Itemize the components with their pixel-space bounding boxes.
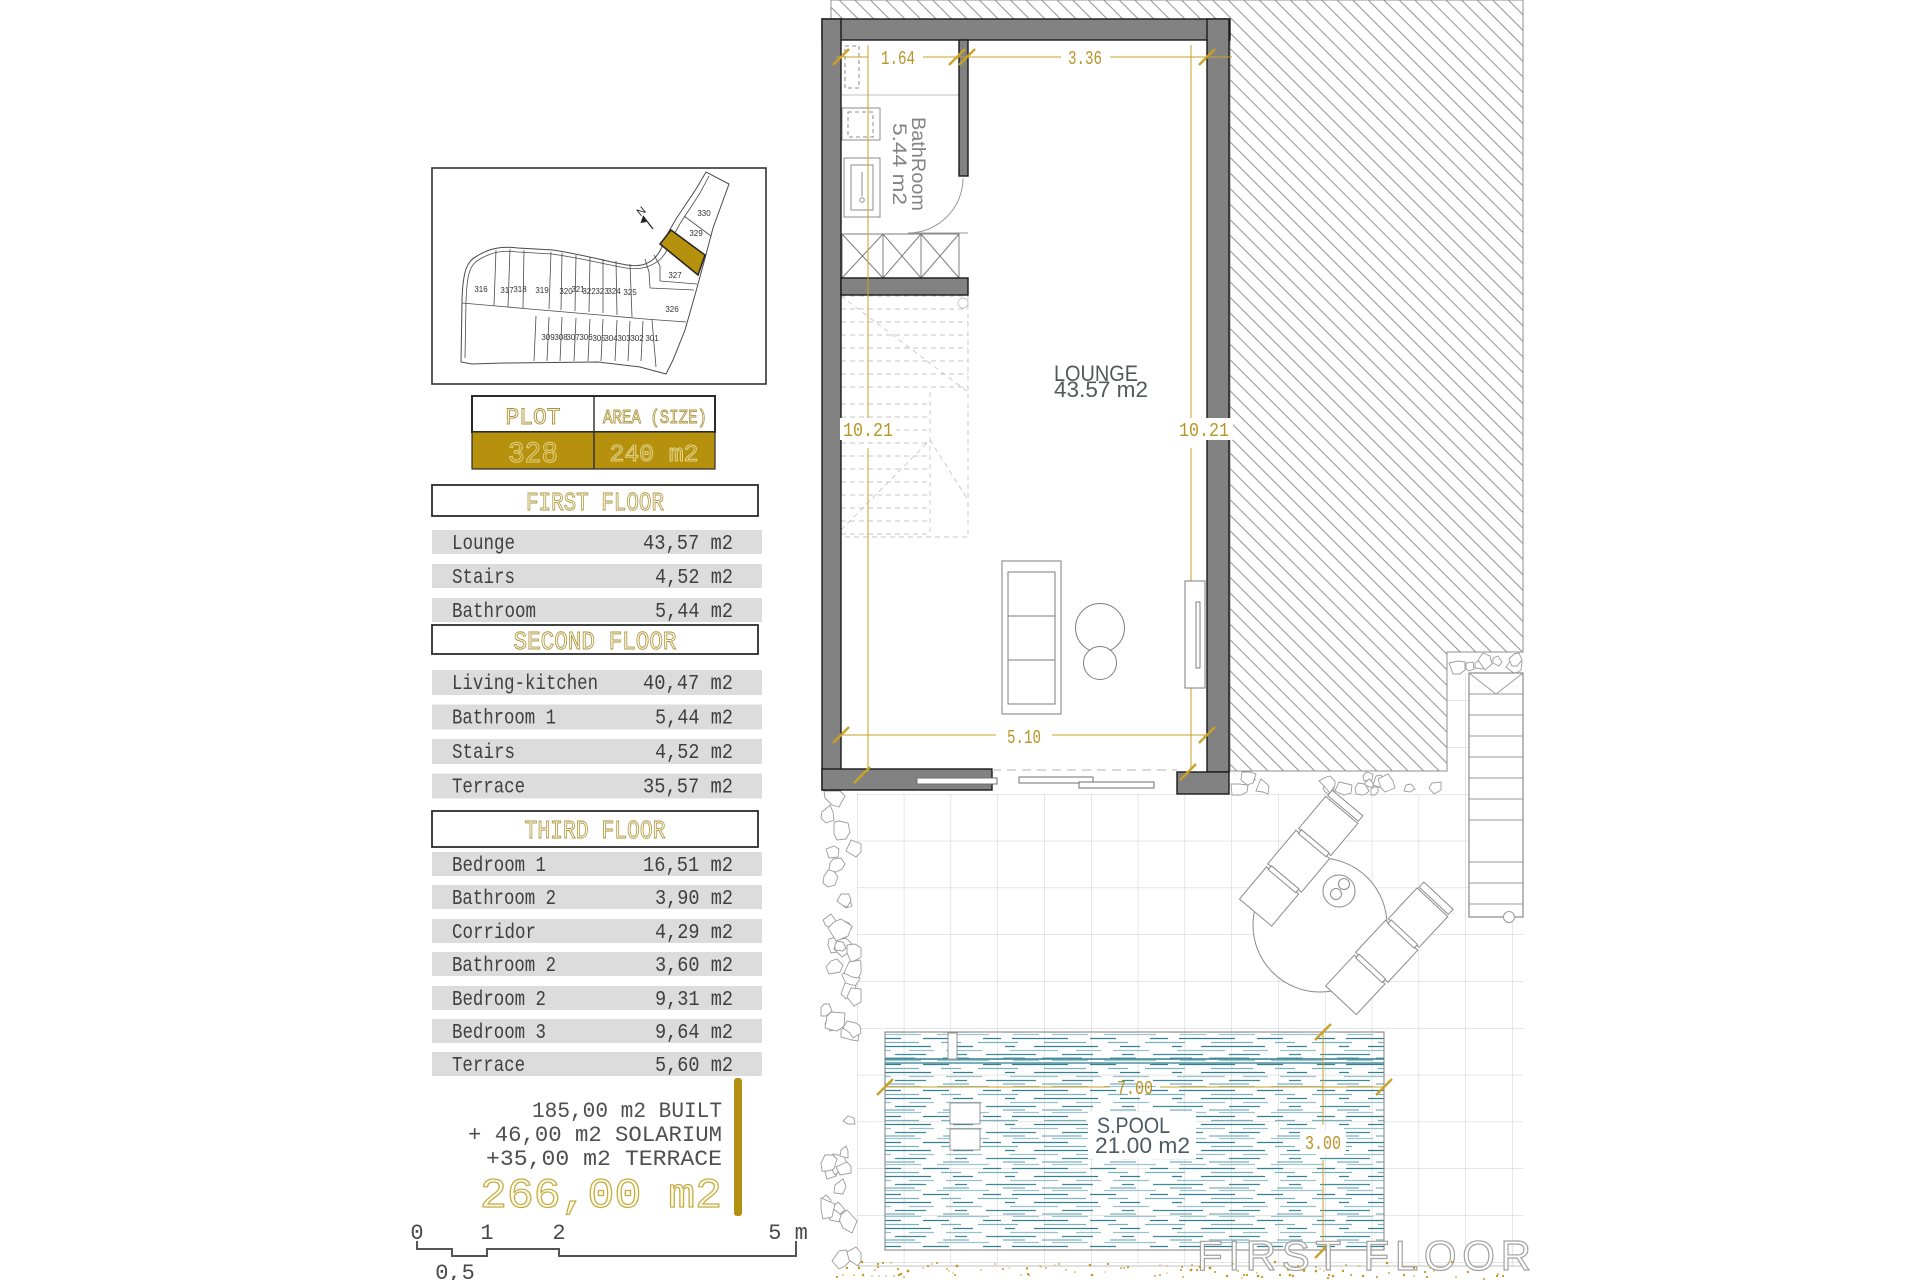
svg-text:325: 325 — [623, 288, 637, 297]
svg-text:324: 324 — [607, 287, 621, 296]
svg-text:BathRoom: BathRoom — [907, 117, 928, 211]
svg-text:Bathroom 1: Bathroom 1 — [452, 708, 556, 731]
svg-text:+35,00 m2 TERRACE: +35,00 m2 TERRACE — [486, 1147, 722, 1172]
svg-text:240 m2: 240 m2 — [610, 442, 699, 469]
svg-text:9,31 m2: 9,31 m2 — [655, 989, 733, 1012]
svg-text:Terrace: Terrace — [452, 777, 525, 800]
svg-text:326: 326 — [665, 305, 679, 314]
svg-text:328: 328 — [508, 438, 558, 472]
svg-text:5,44 m2: 5,44 m2 — [655, 601, 733, 624]
svg-text:21.00 m2: 21.00 m2 — [1095, 1133, 1190, 1158]
svg-text:FIRST FLOOR: FIRST FLOOR — [1197, 1232, 1531, 1279]
svg-text:Bedroom 2: Bedroom 2 — [452, 989, 546, 1012]
svg-text:Lounge: Lounge — [452, 533, 515, 556]
svg-text:3.00: 3.00 — [1305, 1133, 1341, 1155]
svg-text:266,00 m2: 266,00 m2 — [480, 1172, 722, 1220]
svg-text:10.21: 10.21 — [843, 420, 893, 442]
svg-text:Bedroom 1: Bedroom 1 — [452, 855, 546, 878]
svg-text:301: 301 — [645, 334, 659, 343]
svg-text:AREA (SIZE): AREA (SIZE) — [603, 407, 707, 429]
svg-text:Corridor: Corridor — [452, 922, 536, 945]
svg-text:7.00: 7.00 — [1117, 1078, 1153, 1100]
svg-text:43.57 m2: 43.57 m2 — [1054, 377, 1148, 402]
svg-text:Terrace: Terrace — [452, 1055, 525, 1078]
svg-text:3,90 m2: 3,90 m2 — [655, 888, 733, 911]
svg-text:FIRST FLOOR: FIRST FLOOR — [526, 488, 664, 518]
svg-text:35,57 m2: 35,57 m2 — [643, 777, 733, 800]
svg-text:3.36: 3.36 — [1068, 48, 1102, 70]
svg-text:307: 307 — [566, 333, 580, 342]
svg-text:40,47 m2: 40,47 m2 — [643, 673, 733, 696]
svg-text:330: 330 — [697, 209, 711, 218]
svg-text:0: 0 — [410, 1221, 423, 1246]
svg-text:322: 322 — [582, 287, 596, 296]
svg-text:5.10: 5.10 — [1007, 727, 1041, 749]
svg-text:4,29 m2: 4,29 m2 — [655, 922, 733, 945]
svg-text:THIRD FLOOR: THIRD FLOOR — [525, 816, 666, 846]
svg-text:316: 316 — [474, 285, 488, 294]
svg-text:0,5: 0,5 — [435, 1261, 475, 1280]
svg-text:329: 329 — [689, 229, 703, 238]
svg-text:4,52 m2: 4,52 m2 — [655, 742, 733, 765]
svg-text:306: 306 — [579, 333, 593, 342]
svg-text:4,52 m2: 4,52 m2 — [655, 567, 733, 590]
svg-text:5.44 m2: 5.44 m2 — [888, 123, 909, 205]
svg-text:1.64: 1.64 — [881, 48, 915, 70]
svg-text:318: 318 — [513, 285, 527, 294]
svg-text:303: 303 — [617, 334, 631, 343]
svg-text:10.21: 10.21 — [1179, 420, 1229, 442]
svg-text:Living-kitchen: Living-kitchen — [452, 673, 598, 696]
svg-text:3,60 m2: 3,60 m2 — [655, 955, 733, 978]
svg-text:304: 304 — [604, 334, 618, 343]
svg-text:185,00 m2 BUILT: 185,00 m2 BUILT — [532, 1099, 722, 1124]
svg-text:Bathroom 2: Bathroom 2 — [452, 955, 556, 978]
svg-text:9,64 m2: 9,64 m2 — [655, 1022, 733, 1045]
svg-text:2: 2 — [552, 1221, 565, 1246]
svg-text:43,57 m2: 43,57 m2 — [643, 533, 733, 556]
svg-text:+ 46,00 m2 SOLARIUM: + 46,00 m2 SOLARIUM — [468, 1123, 722, 1148]
svg-text:5 m: 5 m — [768, 1221, 808, 1246]
svg-text:327: 327 — [668, 271, 682, 280]
svg-text:5,44 m2: 5,44 m2 — [655, 708, 733, 731]
svg-text:317: 317 — [500, 286, 514, 295]
svg-text:16,51 m2: 16,51 m2 — [643, 855, 733, 878]
svg-text:SECOND FLOOR: SECOND FLOOR — [514, 627, 677, 657]
svg-text:302: 302 — [630, 334, 644, 343]
svg-text:Stairs: Stairs — [452, 567, 515, 590]
svg-text:1: 1 — [480, 1221, 493, 1246]
svg-text:PLOT: PLOT — [506, 405, 561, 431]
svg-text:Stairs: Stairs — [452, 742, 515, 765]
svg-text:Bathroom: Bathroom — [452, 601, 536, 624]
svg-text:5,60 m2: 5,60 m2 — [655, 1055, 733, 1078]
svg-text:319: 319 — [535, 286, 549, 295]
svg-text:Bathroom 2: Bathroom 2 — [452, 888, 556, 911]
svg-text:Bedroom 3: Bedroom 3 — [452, 1022, 546, 1045]
svg-text:309: 309 — [541, 333, 555, 342]
